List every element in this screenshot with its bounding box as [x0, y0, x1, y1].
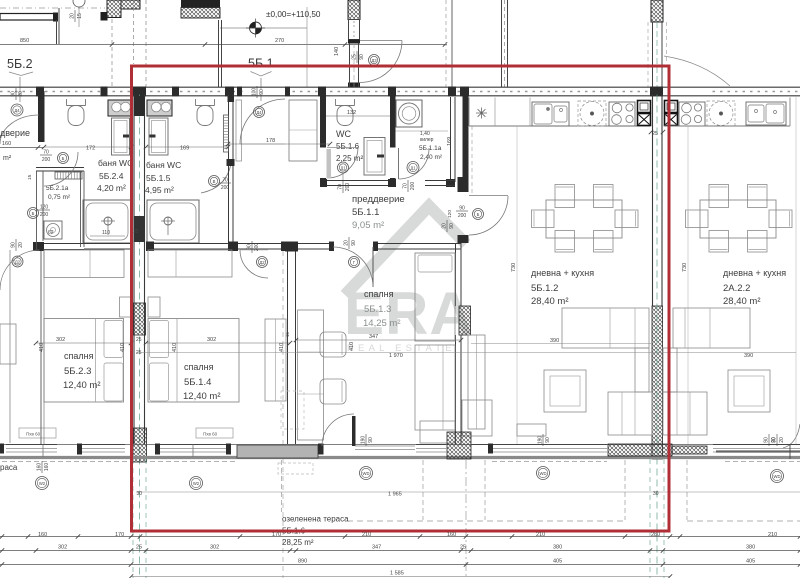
- svg-text:5Б.1.2: 5Б.1.2: [531, 283, 558, 294]
- svg-text:25: 25: [136, 350, 142, 356]
- svg-text:110: 110: [102, 230, 110, 236]
- svg-text:200: 200: [42, 157, 51, 163]
- svg-text:90: 90: [449, 223, 455, 229]
- svg-text:2А.2.2: 2А.2.2: [723, 283, 750, 294]
- svg-text:20: 20: [70, 13, 76, 19]
- svg-text:210: 210: [768, 532, 777, 538]
- svg-text:5Б.2.3: 5Б.2.3: [64, 366, 91, 377]
- svg-text:раса: раса: [0, 463, 18, 472]
- svg-text:270: 270: [275, 38, 284, 44]
- svg-text:килер: килер: [420, 137, 434, 143]
- svg-text:120: 120: [40, 205, 49, 211]
- svg-text:Пхв 60: Пхв 60: [203, 432, 218, 437]
- svg-text:Б: Б: [62, 156, 65, 161]
- svg-text:0,75 m²: 0,75 m²: [48, 194, 71, 201]
- svg-text:±0,00=+110,50: ±0,00=+110,50: [266, 10, 321, 19]
- svg-text:5Б.1.6: 5Б.1.6: [336, 142, 360, 151]
- svg-text:1 970: 1 970: [389, 353, 403, 359]
- svg-text:890: 890: [298, 559, 307, 565]
- svg-text:20: 20: [18, 242, 24, 248]
- svg-text:405: 405: [746, 559, 755, 565]
- svg-text:160: 160: [37, 463, 43, 472]
- svg-text:4,95 m²: 4,95 m²: [145, 185, 174, 195]
- svg-text:WD: WD: [540, 471, 547, 476]
- svg-text:302: 302: [56, 337, 65, 343]
- svg-text:28,40 m²: 28,40 m²: [723, 296, 761, 307]
- svg-text:15: 15: [27, 174, 33, 180]
- svg-text:Д2: Д2: [15, 259, 21, 264]
- svg-text:90: 90: [772, 437, 778, 443]
- svg-text:9,05 m²: 9,05 m²: [352, 220, 384, 231]
- svg-text:190: 190: [361, 436, 367, 445]
- svg-text:850: 850: [20, 38, 29, 44]
- svg-text:15: 15: [285, 331, 290, 337]
- svg-text:90: 90: [259, 89, 265, 95]
- svg-text:410: 410: [172, 343, 178, 352]
- svg-text:5Б.1.3: 5Б.1.3: [364, 304, 391, 315]
- svg-text:Б: Б: [477, 212, 480, 217]
- svg-text:5Б.2.4: 5Б.2.4: [99, 171, 124, 181]
- svg-text:178: 178: [266, 138, 275, 144]
- svg-text:5Б.1.5: 5Б.1.5: [146, 173, 171, 183]
- svg-text:14,25 m²: 14,25 m²: [363, 318, 401, 329]
- svg-text:15: 15: [77, 13, 83, 19]
- svg-text:2,25 m²: 2,25 m²: [336, 154, 363, 163]
- svg-text:160: 160: [447, 532, 456, 538]
- svg-text:90: 90: [247, 244, 253, 250]
- svg-text:30: 30: [653, 491, 659, 497]
- svg-text:12,40 m²: 12,40 m²: [63, 380, 101, 391]
- svg-text:100: 100: [252, 88, 258, 97]
- svg-text:140: 140: [334, 47, 340, 56]
- svg-text:дверие: дверие: [0, 128, 30, 138]
- svg-text:170: 170: [115, 532, 124, 538]
- svg-text:169: 169: [180, 146, 189, 152]
- svg-text:90: 90: [764, 437, 770, 443]
- svg-text:410: 410: [279, 343, 285, 352]
- svg-text:347: 347: [369, 334, 378, 340]
- svg-text:WC: WC: [336, 129, 351, 139]
- svg-text:20: 20: [344, 240, 350, 246]
- svg-text:2,40 m²: 2,40 m²: [420, 154, 443, 161]
- svg-text:160: 160: [2, 141, 11, 147]
- svg-text:132: 132: [347, 110, 356, 116]
- svg-text:200: 200: [345, 183, 351, 192]
- svg-text:200: 200: [458, 213, 467, 219]
- svg-text:90: 90: [368, 437, 374, 443]
- svg-text:W2: W2: [39, 481, 46, 486]
- svg-text:90: 90: [459, 206, 465, 212]
- svg-text:120: 120: [447, 210, 453, 218]
- svg-text:5Б.1.1: 5Б.1.1: [352, 207, 379, 218]
- svg-text:WD: WD: [363, 471, 370, 476]
- svg-text:90: 90: [359, 54, 365, 60]
- svg-text:62: 62: [48, 230, 54, 236]
- svg-text:Б: Б: [32, 211, 35, 216]
- svg-text:Д3: Д3: [371, 58, 377, 63]
- svg-text:70: 70: [222, 178, 228, 184]
- svg-text:W2: W2: [193, 481, 200, 486]
- svg-text:70: 70: [338, 184, 344, 190]
- svg-text:200: 200: [254, 243, 260, 252]
- svg-text:160: 160: [44, 463, 50, 472]
- svg-text:Пхв 60: Пхв 60: [26, 432, 41, 437]
- svg-text:730: 730: [511, 263, 517, 272]
- svg-text:баня WC: баня WC: [98, 158, 133, 168]
- svg-text:20: 20: [779, 437, 785, 443]
- svg-text:90: 90: [545, 437, 551, 443]
- svg-text:25: 25: [352, 54, 358, 60]
- svg-text:Д2: Д2: [259, 260, 265, 265]
- svg-text:70: 70: [43, 150, 49, 156]
- svg-text:спалня: спалня: [364, 289, 394, 299]
- svg-text:90: 90: [11, 242, 17, 248]
- svg-text:302: 302: [207, 337, 216, 343]
- svg-text:20: 20: [18, 91, 24, 97]
- svg-text:4,20 m²: 4,20 m²: [97, 183, 126, 193]
- svg-text:20: 20: [442, 223, 448, 229]
- svg-text:1 965: 1 965: [388, 492, 402, 498]
- svg-text:390: 390: [744, 353, 753, 359]
- svg-text:В: В: [213, 179, 216, 184]
- svg-text:1 585: 1 585: [390, 571, 404, 577]
- svg-text:390: 390: [550, 338, 559, 344]
- svg-text:730: 730: [682, 263, 688, 272]
- svg-text:410: 410: [120, 343, 126, 352]
- svg-text:172: 172: [86, 146, 95, 152]
- svg-text:90: 90: [351, 240, 357, 246]
- svg-text:дневна + кухня: дневна + кухня: [531, 268, 594, 278]
- svg-text:380: 380: [553, 545, 562, 551]
- svg-text:380: 380: [746, 545, 755, 551]
- svg-text:спалня: спалня: [184, 362, 214, 372]
- svg-text:5Б.1.4: 5Б.1.4: [184, 377, 211, 388]
- svg-text:спалня: спалня: [64, 351, 94, 361]
- svg-text:28,25 m²: 28,25 m²: [282, 538, 314, 547]
- svg-text:25: 25: [136, 337, 142, 343]
- svg-text:25: 25: [136, 545, 142, 551]
- svg-text:170: 170: [272, 532, 281, 538]
- svg-text:5Б.2: 5Б.2: [7, 57, 33, 71]
- svg-text:5Б.1: 5Б.1: [248, 57, 274, 71]
- svg-text:280: 280: [651, 532, 660, 538]
- svg-text:Д1: Д1: [340, 165, 346, 170]
- svg-text:5Б.2.1а: 5Б.2.1а: [46, 185, 69, 192]
- svg-text:405: 405: [553, 559, 562, 565]
- svg-text:дневна + кухня: дневна + кухня: [723, 268, 786, 278]
- svg-text:410: 410: [349, 342, 355, 351]
- svg-text:210: 210: [362, 532, 371, 538]
- svg-text:28,40 m²: 28,40 m²: [531, 296, 569, 307]
- svg-text:200: 200: [40, 212, 49, 218]
- svg-text:m²: m²: [3, 155, 12, 162]
- svg-text:12,40 m²: 12,40 m²: [183, 391, 221, 402]
- svg-text:90: 90: [11, 91, 17, 97]
- svg-text:Д4: Д4: [256, 110, 262, 115]
- svg-text:25: 25: [460, 545, 466, 551]
- svg-text:190: 190: [538, 436, 544, 445]
- svg-text:озеленена тераса: озеленена тераса: [282, 515, 349, 524]
- svg-text:210: 210: [536, 532, 545, 538]
- svg-text:Д4: Д4: [14, 108, 20, 113]
- svg-text:преддверие: преддверие: [352, 194, 405, 205]
- svg-text:302: 302: [58, 545, 67, 551]
- svg-text:347: 347: [372, 545, 381, 551]
- svg-text:5Б.1.1а: 5Б.1.1а: [419, 145, 442, 152]
- svg-text:баня WC: баня WC: [146, 160, 181, 170]
- svg-text:70: 70: [403, 183, 409, 189]
- svg-text:200: 200: [410, 182, 416, 191]
- svg-text:30: 30: [137, 491, 143, 497]
- svg-text:WD: WD: [774, 474, 781, 479]
- svg-text:Д1: Д1: [410, 165, 416, 170]
- svg-text:160: 160: [38, 532, 47, 538]
- svg-text:25: 25: [133, 229, 139, 235]
- svg-text:302: 302: [210, 545, 219, 551]
